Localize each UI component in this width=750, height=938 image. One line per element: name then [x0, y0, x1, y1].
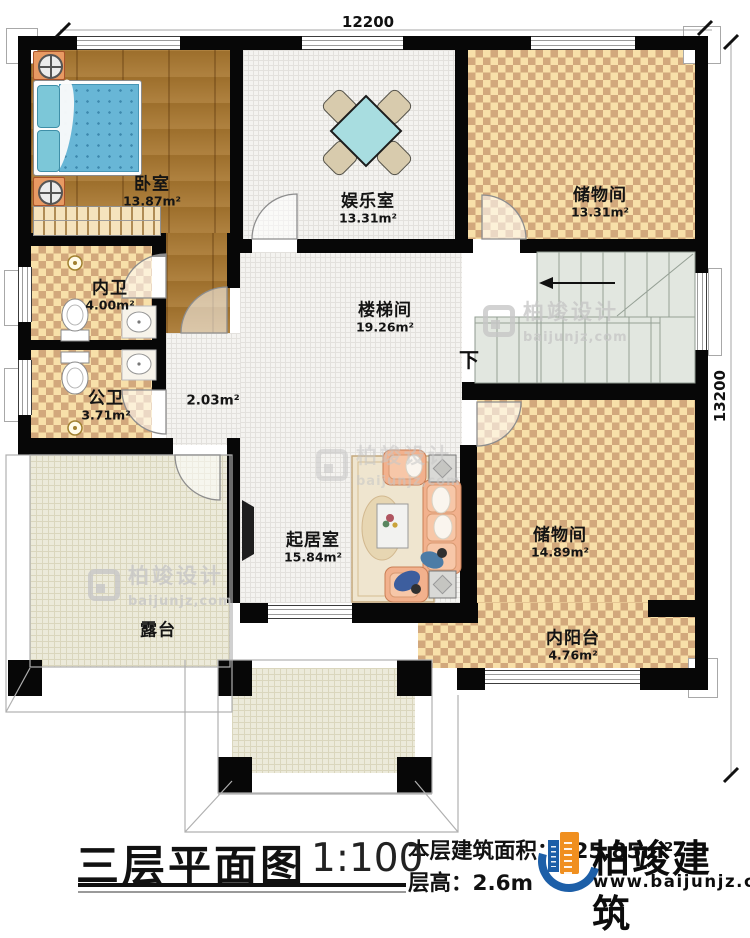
column — [8, 660, 42, 696]
floor-stairhall-living — [240, 252, 462, 603]
wall — [520, 239, 695, 253]
room-label-hall-area: 2.03m² — [186, 393, 239, 408]
watermark: 柏竣设计 baijunjz,com — [316, 440, 461, 489]
wall — [297, 239, 473, 253]
floor-height-line: 层高：2.6m — [408, 866, 533, 897]
room-label-public-bath: 公卫 3.71m² — [81, 389, 130, 422]
title-underline — [78, 883, 406, 887]
exterior-bay-box — [708, 268, 722, 356]
column — [218, 660, 252, 696]
window-public-bath — [18, 360, 32, 415]
wall — [460, 445, 477, 605]
title-underline-thin — [78, 891, 406, 893]
wall — [640, 668, 708, 690]
wall — [230, 36, 243, 252]
watermark-brand: 柏竣设计 — [128, 564, 224, 588]
room-label-storage-top: 储物间 13.31m² — [571, 186, 629, 219]
scale-label: 1:100 — [311, 836, 423, 881]
column — [218, 757, 252, 793]
room-label-living: 起居室 15.84m² — [284, 531, 342, 564]
watermark-url: baijunjz,com — [128, 594, 233, 609]
window-storage-top — [531, 36, 635, 50]
column — [397, 757, 432, 793]
wall — [695, 350, 708, 690]
pillow — [37, 130, 60, 172]
bed — [33, 80, 142, 176]
brand-logo-building-blue — [548, 840, 559, 872]
wall — [457, 668, 485, 690]
room-label-bedroom: 卧室 13.87m² — [123, 175, 181, 208]
window-stairs — [693, 273, 707, 350]
wall — [352, 603, 478, 623]
brand-logo: 柏竣建筑 www.baijunjz.com — [536, 824, 750, 902]
watermark: 柏竣设计 baijunjz,com — [483, 296, 628, 345]
column — [397, 660, 432, 696]
room-label-terrace: 露台 — [140, 621, 176, 640]
watermark-logo-icon — [88, 569, 120, 601]
brand-url: www.baijunjz.com — [593, 872, 750, 891]
wall — [227, 233, 240, 288]
floor-plan-canvas: 柏竣设计 baijunjz,com 柏竣设计 baijunjz,com 柏竣设计… — [0, 0, 750, 905]
watermark-brand: 柏竣设计 — [523, 300, 619, 324]
watermark-logo-icon — [316, 449, 348, 481]
pillow — [37, 85, 60, 128]
window-inner-bath — [18, 267, 32, 322]
room-label-entertainment: 娱乐室 13.31m² — [339, 192, 397, 225]
stair-direction-arrow — [539, 277, 615, 289]
wall — [240, 603, 268, 623]
watermark-url: baijunjz,com — [523, 330, 628, 345]
watermark-brand: 柏竣设计 — [356, 444, 452, 468]
window-living — [268, 605, 352, 619]
wall — [695, 36, 708, 273]
window-inner-balcony — [485, 670, 640, 684]
floor-height-value: 2.6m — [473, 871, 534, 896]
floor-porch — [232, 668, 415, 773]
wall — [648, 600, 695, 617]
dimension-right: 13200 — [711, 370, 729, 422]
nightstand — [33, 177, 65, 206]
floor-hallway — [166, 333, 240, 445]
wall — [152, 233, 166, 257]
wall — [18, 340, 165, 350]
lamp-icon — [38, 180, 63, 205]
watermark-logo-icon — [483, 305, 515, 337]
room-label-inner-balcony: 内阳台 4.76m² — [546, 629, 600, 662]
watermark-url: baijunjz,com — [356, 474, 461, 489]
room-label-inner-bath: 内卫 4.00m² — [85, 279, 134, 312]
room-label-stair-hall: 楼梯间 19.26m² — [356, 301, 414, 334]
stairs-down-label: 下 — [459, 344, 479, 373]
watermark: 柏竣设计 baijunjz,com — [88, 560, 233, 609]
window-entertainment — [302, 36, 403, 50]
floor-storage-bottom — [477, 400, 695, 612]
window-bedroom — [77, 36, 180, 50]
wall — [455, 36, 468, 252]
dimension-top: 12200 — [342, 13, 394, 31]
brand-logo-building-orange — [560, 832, 579, 874]
nightstand — [33, 51, 65, 80]
wall — [18, 438, 173, 455]
wardrobe — [33, 206, 161, 236]
wall — [462, 382, 695, 400]
room-label-storage-bottom: 储物间 14.89m² — [531, 526, 589, 559]
lamp-icon — [38, 54, 63, 79]
floor-bedroom-corridor — [166, 233, 230, 333]
